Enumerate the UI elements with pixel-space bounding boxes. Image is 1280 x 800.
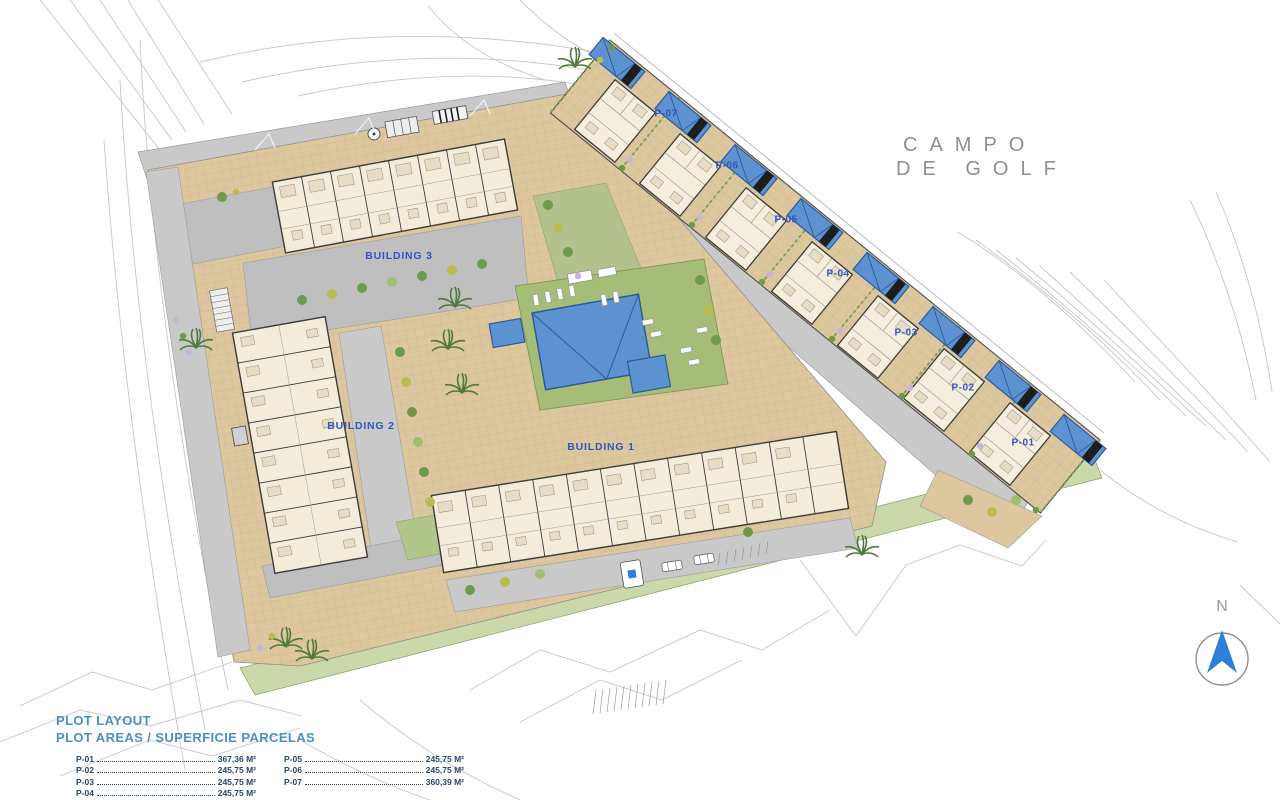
legend-title: PLOT LAYOUT xyxy=(56,712,616,729)
building-2-label: BUILDING 2 xyxy=(327,420,395,432)
plot-label-p06: P-06 xyxy=(715,161,738,172)
legend-row-p03: P-03245,75 M² xyxy=(76,775,256,787)
plot-label-p04: P-04 xyxy=(826,269,849,280)
plot-label-p05: P-05 xyxy=(774,215,797,226)
legend-column-1: P-01367,36 M² P-02245,75 M² P-03245,75 M… xyxy=(76,752,256,798)
golf-course-label-line2: DE GOLF xyxy=(896,158,1068,181)
plot-label-p07: P-07 xyxy=(654,109,677,120)
legend-row-p05: P-05245,75 M² xyxy=(284,752,464,764)
legend-row-p01: P-01367,36 M² xyxy=(76,752,256,764)
legend-subtitle: PLOT AREAS / SUPERFICIE PARCELAS xyxy=(56,729,616,746)
site-plan-drawing xyxy=(0,0,1280,800)
legend-row-p02: P-02245,75 M² xyxy=(76,764,256,776)
building-1-label: BUILDING 1 xyxy=(567,441,635,453)
legend-row-p04: P-04245,75 M² xyxy=(76,787,256,799)
small-pool-1 xyxy=(489,318,525,347)
plot-label-p03: P-03 xyxy=(894,328,917,339)
golf-course-label-line1: CAMPO xyxy=(903,134,1036,157)
north-label: N xyxy=(1216,598,1228,616)
legend-row-p07: P-07360,39 M² xyxy=(284,775,464,787)
building-3-label: BUILDING 3 xyxy=(365,250,433,262)
plot-legend: PLOT LAYOUT PLOT AREAS / SUPERFICIE PARC… xyxy=(56,712,616,798)
small-pool-2 xyxy=(628,355,671,393)
plot-label-p02: P-02 xyxy=(951,383,974,394)
legend-row-p06: P-06245,75 M² xyxy=(284,764,464,776)
plot-label-p01: P-01 xyxy=(1011,438,1034,449)
north-arrow xyxy=(1196,630,1248,685)
site-plan-sheet: CAMPO DE GOLF BUILDING 3 BUILDING 2 BUIL… xyxy=(0,0,1280,800)
legend-column-2: P-05245,75 M² P-06245,75 M² P-07360,39 M… xyxy=(284,752,464,798)
